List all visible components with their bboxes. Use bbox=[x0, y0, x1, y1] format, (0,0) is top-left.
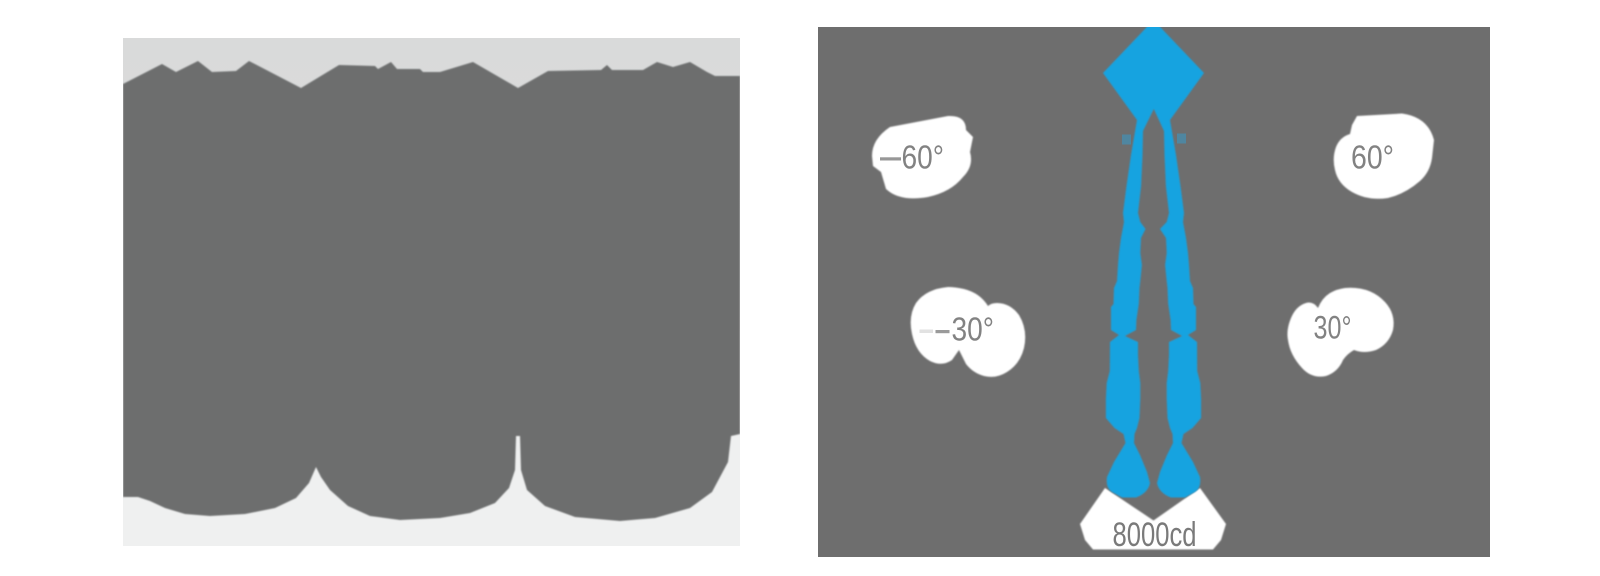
svg-text:60°: 60° bbox=[1351, 139, 1394, 176]
svg-text:8000cd: 8000cd bbox=[1113, 516, 1197, 554]
svg-text:30°: 30° bbox=[1314, 310, 1352, 346]
svg-text:60°: 60° bbox=[902, 139, 945, 176]
svg-text:30°: 30° bbox=[952, 311, 995, 348]
